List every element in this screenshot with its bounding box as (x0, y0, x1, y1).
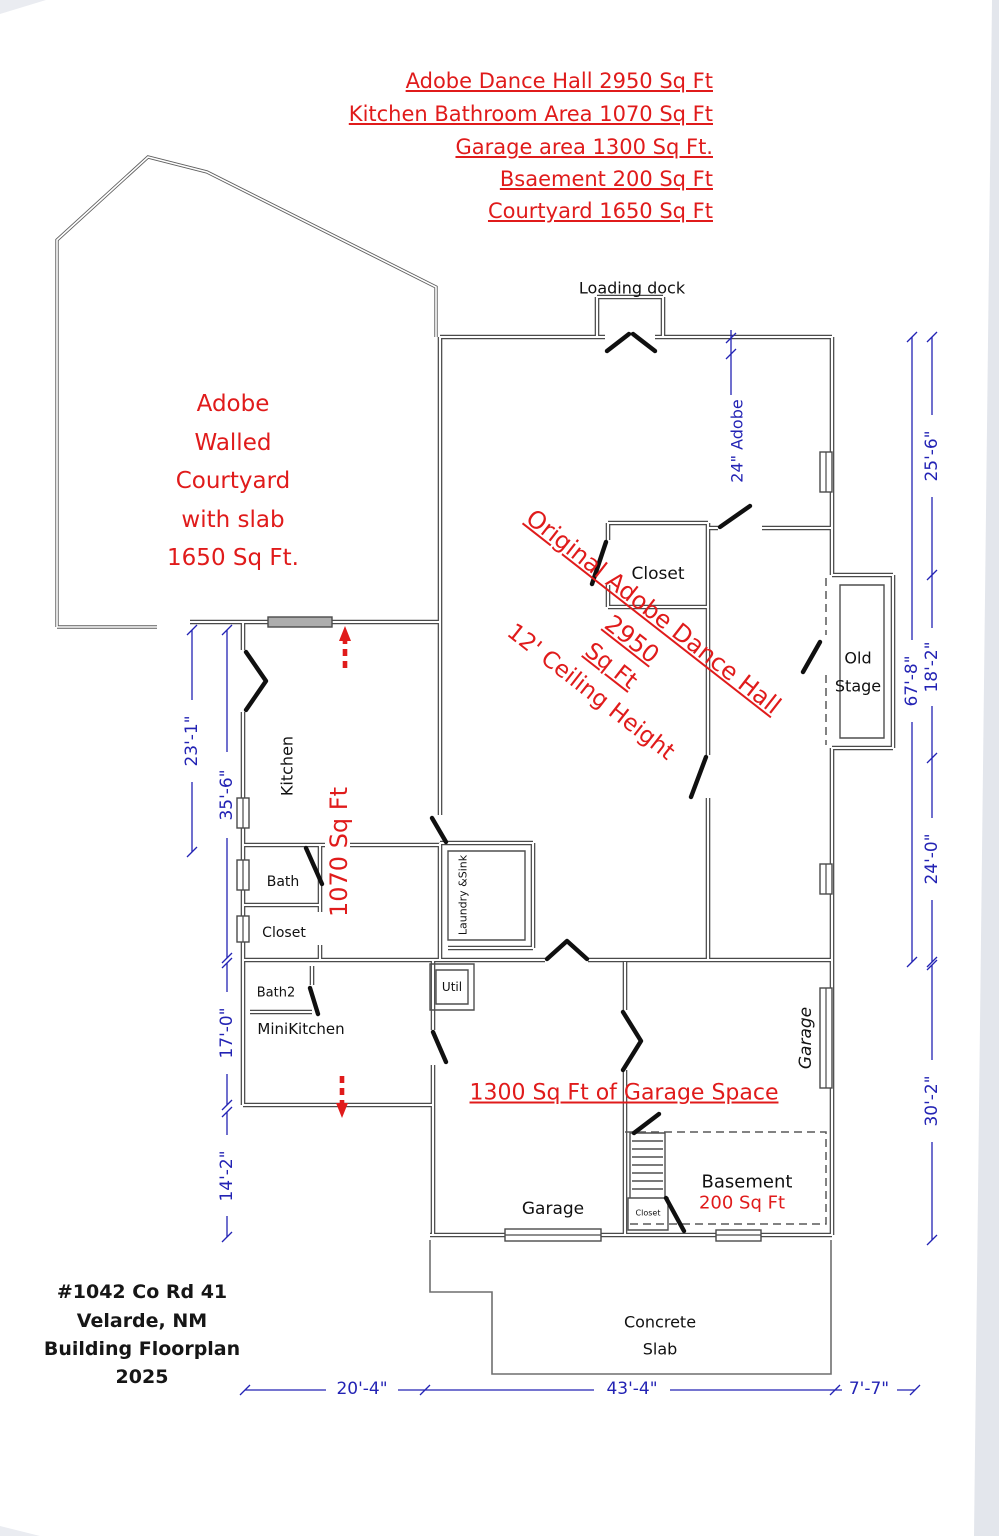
room-label-basement: Basement (702, 1172, 793, 1193)
dim-24-0: 24'-0" (922, 833, 942, 884)
dim-67-8: 67'-8" (902, 655, 922, 706)
room-label-garage-left: Garage (522, 1199, 584, 1219)
room-label-old-stage-2: Stage (835, 677, 881, 696)
floorplan-page: Adobe Dance Hall 2950 Sq Ft Kitchen Bath… (0, 0, 999, 1536)
room-label-garage-right: Garage (796, 1007, 816, 1069)
room-label-bath2: Bath2 (257, 986, 296, 1001)
basement-sqft-note: 200 Sq Ft (699, 1193, 785, 1214)
dim-17-0: 17'-0" (217, 1007, 237, 1058)
adobe-wall-note: 24" Adobe (728, 399, 747, 482)
stairs (632, 1141, 663, 1189)
dim-20-4: 20'-4" (336, 1379, 387, 1399)
garage-sqft-note: 1300 Sq Ft of Garage Space (470, 1081, 779, 1106)
room-label-old-stage-1: Old (844, 649, 871, 668)
courtyard-label-line4: with slab (181, 507, 284, 533)
room-label-stairs-closet: Closet (636, 1209, 661, 1218)
dim-30-2: 30'-2" (922, 1075, 942, 1126)
dim-35-6: 35'-6" (217, 769, 237, 820)
loading-dock-label: Loading dock (579, 279, 685, 298)
title-line-courtyard: Courtyard 1650 Sq Ft (488, 199, 713, 223)
title-line-kitchen-bath: Kitchen Bathroom Area 1070 Sq Ft (349, 102, 713, 126)
dim-7-7: 7'-7" (849, 1379, 889, 1399)
slab-label-line2: Slab (643, 1340, 678, 1359)
slab-label-line1: Concrete (624, 1313, 696, 1332)
room-label-closet-kitchen: Closet (262, 925, 306, 941)
dim-43-4: 43'-4" (606, 1379, 657, 1399)
courtyard-label-line5: 1650 Sq Ft. (167, 545, 299, 571)
room-label-closet-hall: Closet (632, 564, 685, 584)
room-label-laundry-sink: Laundry &Sink (457, 855, 470, 935)
courtyard-label-line2: Walled (195, 430, 272, 456)
room-label-kitchen: Kitchen (278, 736, 297, 796)
address-line4: 2025 (116, 1366, 169, 1388)
address-line1: #1042 Co Rd 41 (57, 1281, 227, 1303)
page-edge-shading (0, 0, 999, 1536)
courtyard-label-line3: Courtyard (176, 468, 291, 494)
dim-14-2: 14'-2" (217, 1150, 237, 1201)
room-label-bath: Bath (267, 874, 300, 890)
title-line-garage: Garage area 1300 Sq Ft. (455, 135, 713, 159)
room-label-minikitchen: MiniKitchen (257, 1020, 344, 1038)
dim-23-1: 23'-1" (182, 715, 202, 766)
concrete-slab-outline (430, 1240, 831, 1374)
title-line-basement: Bsaement 200 Sq Ft (500, 167, 713, 191)
address-line3: Building Floorplan (44, 1338, 240, 1360)
kitchen-area-sqft-note: 1070 Sq Ft (325, 787, 353, 917)
title-line-dance-hall: Adobe Dance Hall 2950 Sq Ft (406, 69, 713, 93)
dim-25-6: 25'-6" (922, 430, 942, 481)
courtyard-label-line1: Adobe (197, 391, 270, 417)
address-line2: Velarde, NM (77, 1310, 207, 1332)
floorplan-drawing (0, 0, 999, 1536)
room-label-util: Util (442, 980, 462, 994)
dim-18-2: 18'-2" (922, 641, 942, 692)
